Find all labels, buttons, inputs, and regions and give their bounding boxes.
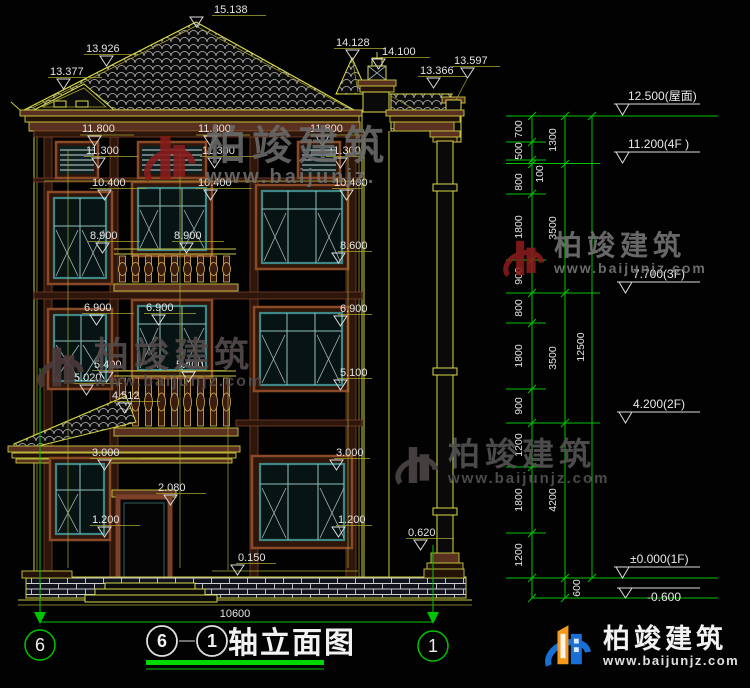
dim-label: 3.000	[92, 447, 120, 459]
dim-label: 5.020	[74, 372, 102, 384]
chain-dim: 900	[513, 397, 525, 415]
chain-dim: 1800	[513, 215, 525, 239]
dim-label: 1.200	[338, 514, 366, 526]
elevation-label: 12.500(屋面)	[628, 89, 697, 103]
title-bubble-number: 1	[207, 631, 217, 651]
dim-label: 4.512	[112, 390, 140, 402]
title-bubble-number: 6	[157, 631, 167, 651]
dim-label: 2.080	[158, 482, 186, 494]
chain-dim: 4200	[547, 488, 559, 512]
chain-dim: 900	[513, 267, 525, 285]
dim-label: 11.800	[82, 123, 115, 135]
dim-label: 8.900	[174, 230, 202, 242]
elevation-canvas: 15.138 13.926 13.377 14.128 14.100 13.36…	[0, 0, 750, 688]
dim-label: 8.900	[90, 230, 118, 242]
title-text: 轴立面图	[228, 626, 356, 660]
window-2f-right	[254, 307, 348, 391]
dim-label: 6.900	[84, 302, 112, 314]
dim-label: 6.900	[146, 302, 174, 314]
elevation-label: 7.700(3F)	[633, 267, 685, 281]
company-name: 柏竣建筑	[603, 625, 739, 653]
company-url: www.baijunjz.com	[603, 654, 739, 667]
dim-label: 10.400	[334, 177, 368, 189]
axis-number: 6	[35, 635, 45, 655]
dim-label: 14.100	[382, 46, 416, 58]
chain-dim: 700	[513, 120, 525, 138]
dim-label: 10.400	[198, 177, 232, 189]
chain-dim: 600	[571, 579, 583, 597]
dim-label: 13.377	[50, 66, 84, 78]
chain-dim: 3500	[547, 216, 559, 240]
balcony-2f	[114, 371, 238, 436]
title-underline	[146, 660, 324, 665]
elevation-label: -0.600	[647, 590, 681, 604]
dim-label: 5.400	[94, 359, 122, 371]
dim-label: 11.300	[328, 145, 361, 157]
chain-dim: 1800	[513, 488, 525, 512]
elevation-label: 4.200(2F)	[633, 397, 685, 411]
chain-dim: 100	[534, 165, 546, 183]
entry-door	[112, 490, 176, 583]
axis-bubble-right: 1	[418, 631, 448, 661]
cad-elevation-drawing: 15.138 13.926 13.377 14.128 14.100 13.36…	[0, 0, 750, 688]
elevation-label: 11.200(4F )	[628, 137, 689, 151]
company-logo-icon	[538, 618, 594, 674]
axis-number: 1	[428, 636, 438, 656]
chimney	[358, 52, 396, 112]
dim-label: 14.128	[336, 37, 370, 49]
dimension-chain: 700 500 100 800 1800 900 800 1800 900 12…	[506, 112, 718, 602]
dim-label: 8.600	[340, 240, 368, 252]
chain-dim: 1200	[513, 433, 525, 457]
dim-label: 6.900	[340, 303, 368, 315]
chain-dim: 1800	[513, 344, 525, 368]
window-1f-left	[50, 458, 110, 540]
window-3f-center	[132, 182, 212, 256]
elevation-label: ±0.000(1F)	[630, 552, 689, 566]
drawing-title: 6 1 轴立面图	[146, 626, 356, 669]
dim-label: 13.597	[454, 55, 488, 67]
dim-label: 11.300	[86, 145, 119, 157]
chain-dim: 1300	[547, 128, 559, 152]
overall-width-label: 10600	[220, 608, 251, 620]
dim-label: 10.400	[92, 177, 126, 189]
chain-dim: 800	[513, 173, 525, 191]
dim-label: 5.400	[176, 359, 204, 371]
porch-slab-lines	[212, 571, 358, 577]
dim-label: 11.300	[202, 145, 235, 157]
dim-label: 0.620	[408, 527, 436, 539]
veranda-column	[427, 131, 463, 573]
chain-dim: 3500	[547, 346, 559, 370]
elevation-markers: 12.500(屋面) 11.200(4F ) 7.700(3F) 4.200(2…	[614, 89, 700, 604]
chain-dim: 12500	[575, 332, 587, 361]
dim-label: 3.000	[336, 447, 364, 459]
dim-label: 13.366	[420, 65, 454, 77]
dim-label: 13.926	[86, 43, 120, 55]
chain-dim: 1200	[513, 543, 525, 567]
attic-louver-center	[138, 142, 206, 178]
dim-label: 11.800	[198, 123, 231, 135]
dim-label: 5.100	[340, 367, 368, 379]
chain-dim: 500	[513, 142, 525, 160]
company-logo: 柏竣建筑 www.baijunjz.com	[538, 618, 739, 674]
dim-label: 15.138	[214, 4, 248, 16]
dim-label: 1.200	[92, 514, 120, 526]
chain-dim: 800	[513, 299, 525, 317]
axis-bubble-left: 6	[25, 630, 55, 660]
dim-label: 0.150	[238, 552, 266, 564]
dim-label: 11.800	[310, 123, 343, 135]
